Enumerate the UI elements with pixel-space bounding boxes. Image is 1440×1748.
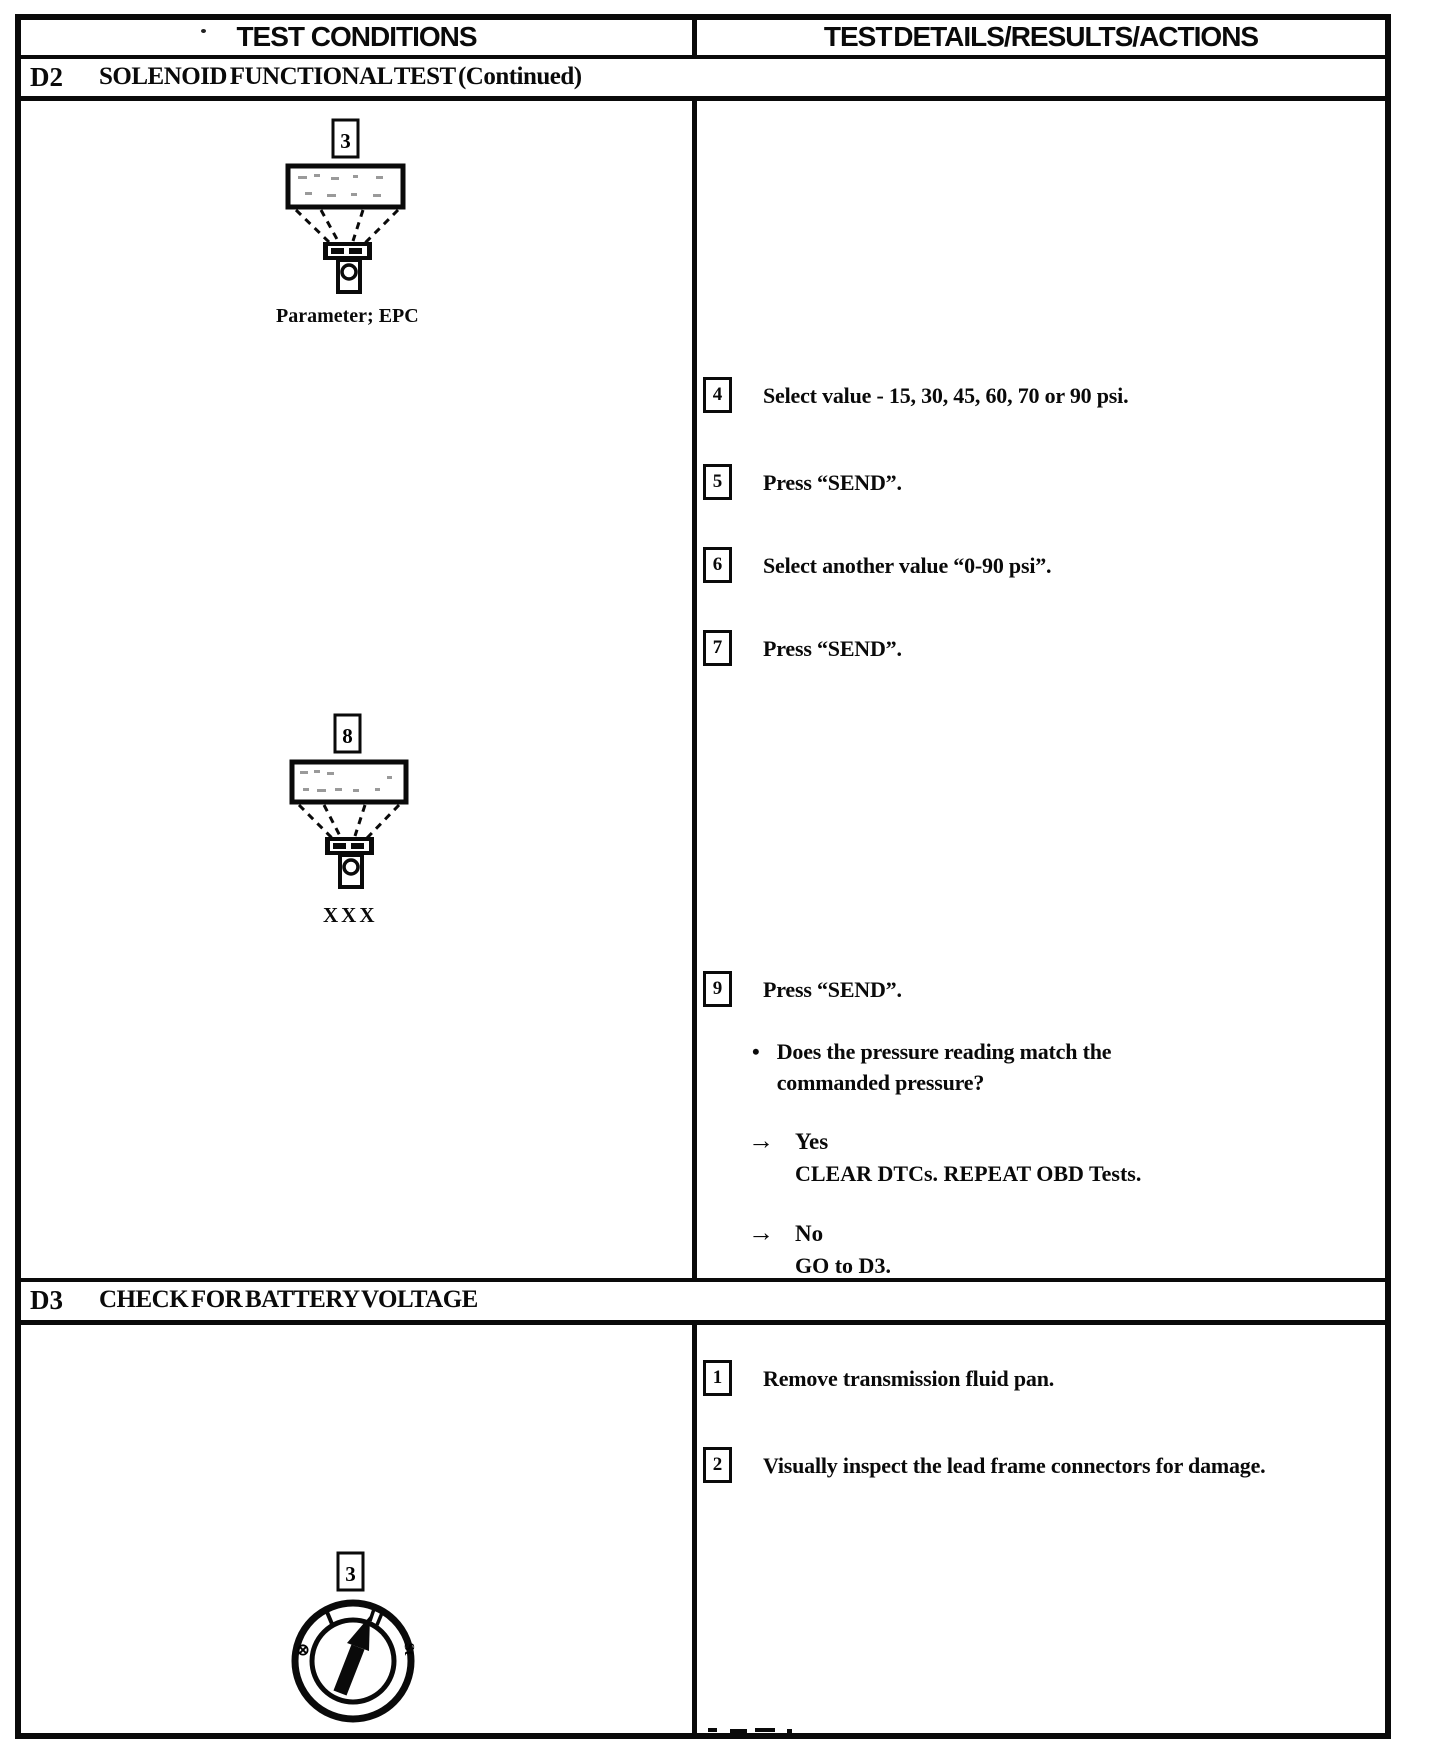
- callout-dashed-lines: [299, 805, 399, 838]
- step-number-box: 5: [703, 464, 732, 500]
- step-d3-2: 2 Visually inspect the lead frame connec…: [703, 1447, 1265, 1483]
- tester-display-screen: [288, 166, 403, 207]
- step-text: Press “SEND”.: [763, 630, 902, 664]
- section-id-d2: D2: [30, 62, 63, 93]
- arrow-right-icon: →: [748, 1126, 774, 1190]
- step-text: Remove transmission fluid pan.: [763, 1360, 1054, 1394]
- tester-device-icon: [323, 242, 372, 292]
- result-answer: No: [795, 1218, 891, 1250]
- step-number-box: 1: [703, 1360, 732, 1396]
- d2-column-divider: [692, 101, 697, 1278]
- step-number-box: 2: [703, 1447, 732, 1483]
- section-row-d2: D2 SOLENOID FUNCTIONAL TEST (Continued): [30, 59, 582, 95]
- d3-column-divider: [692, 1325, 697, 1733]
- section-title-d2: SOLENOID FUNCTIONAL TEST (Continued): [99, 63, 582, 91]
- step-number-box: 4: [703, 377, 732, 413]
- tester-device-icon: [325, 837, 374, 887]
- scan-artifact: [755, 1728, 775, 1732]
- figure-caption-parameter-epc: Parameter; EPC: [276, 305, 419, 328]
- manual-page: TEST CONDITIONS TEST DETAILS/RESULTS/ACT…: [0, 0, 1440, 1748]
- bullet-icon: •: [752, 1036, 760, 1098]
- d3-title-bottom-rule: [21, 1320, 1385, 1325]
- step-text: Press “SEND”.: [763, 464, 902, 498]
- figure-tester-screen-xxx: 8: [287, 712, 412, 892]
- result-action: GO to D3.: [795, 1250, 891, 1282]
- step-number: 3: [345, 1562, 356, 1586]
- figure-caption-xxx: XXX: [323, 903, 378, 928]
- step-number: 3: [340, 129, 351, 153]
- step-text: Select value - 15, 30, 45, 60, 70 or 90 …: [763, 377, 1128, 411]
- result-action: CLEAR DTCs. REPEAT OBD Tests.: [795, 1158, 1141, 1190]
- section-row-d3: D3 CHECK FOR BATTERY VOLTAGE: [30, 1282, 478, 1318]
- result-no: → No GO to D3.: [748, 1218, 891, 1282]
- d2-title-bottom-rule: [21, 96, 1385, 101]
- step-d2-5: 5 Press “SEND”.: [703, 464, 902, 500]
- scan-artifact: [730, 1729, 747, 1733]
- ignition-start-mark: St: [401, 1643, 416, 1656]
- step-number-box: 9: [703, 971, 732, 1007]
- figure-tester-screen-epc: 3: [283, 114, 408, 299]
- step-d3-1: 1 Remove transmission fluid pan.: [703, 1360, 1054, 1396]
- step-text: Visually inspect the lead frame connecto…: [763, 1447, 1265, 1481]
- step-text: Select another value “0-90 psi”.: [763, 547, 1051, 581]
- scan-artifact: [708, 1728, 717, 1732]
- step-number: 8: [342, 724, 353, 748]
- figure-ignition-switch-run: 3 ⊗ St: [290, 1548, 422, 1730]
- scan-artifact: [787, 1729, 792, 1733]
- step-text: Press “SEND”.: [763, 971, 902, 1005]
- section-title-d3: CHECK FOR BATTERY VOLTAGE: [99, 1286, 478, 1314]
- scan-artifact-dot: [201, 29, 206, 33]
- result-yes: → Yes CLEAR DTCs. REPEAT OBD Tests.: [748, 1126, 1141, 1190]
- step-d2-7: 7 Press “SEND”.: [703, 630, 902, 666]
- tester-display-screen: [292, 762, 406, 802]
- section-id-d3: D3: [30, 1285, 63, 1316]
- result-question: • Does the pressure reading match the co…: [752, 1036, 1187, 1098]
- step-d2-9: 9 Press “SEND”.: [703, 971, 902, 1007]
- step-number-box: 6: [703, 547, 732, 583]
- step-d2-4: 4 Select value - 15, 30, 45, 60, 70 or 9…: [703, 377, 1128, 413]
- ignition-off-mark: ⊗: [296, 1642, 309, 1659]
- callout-dashed-lines: [296, 210, 398, 243]
- step-d2-6: 6 Select another value “0-90 psi”.: [703, 547, 1051, 583]
- arrow-right-icon: →: [748, 1218, 774, 1282]
- column-header-test-details: TEST DETAILS/RESULTS/ACTIONS: [697, 19, 1385, 55]
- step-number-box: 7: [703, 630, 732, 666]
- column-header-test-conditions: TEST CONDITIONS: [21, 19, 692, 55]
- result-answer: Yes: [795, 1126, 1141, 1158]
- question-text: Does the pressure reading match the comm…: [777, 1036, 1187, 1098]
